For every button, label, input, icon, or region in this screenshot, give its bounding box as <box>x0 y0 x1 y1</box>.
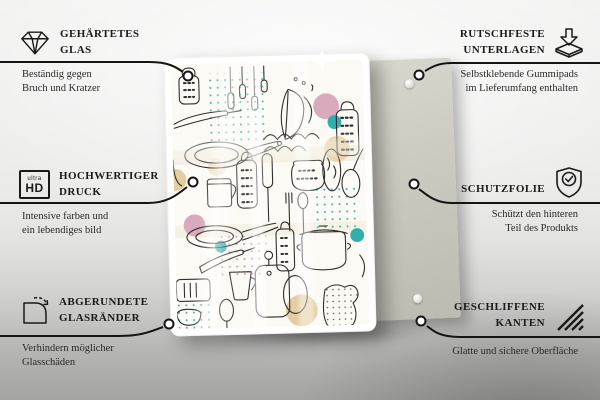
feature-description: Selbstklebende Gummipads im Lieferumfang… <box>428 68 600 96</box>
ultra-hd-icon-label-main: HD <box>25 182 43 194</box>
feature-description: Beständig gegen Bruch und Kratzer <box>0 68 165 96</box>
product-feature-infographic: GEHÄRTETES GLAS Beständig gegen Bruch un… <box>0 0 600 400</box>
diagonal-hatch-icon <box>553 300 585 332</box>
feature-title: SCHUTZFOLIE <box>461 182 545 201</box>
pattern-kitchen-doodles <box>171 60 370 330</box>
rubber-pad <box>405 79 414 88</box>
feature-description: Glatte und sichere Oberfläche <box>428 345 600 359</box>
diamond-icon <box>19 29 51 56</box>
shield-check-icon <box>553 166 585 200</box>
feature-callout-tempered-glass: GEHÄRTETES GLAS Beständig gegen Bruch un… <box>0 24 165 96</box>
feature-title: GEHÄRTETES GLAS <box>60 27 139 59</box>
rubber-pad <box>413 294 422 303</box>
feature-callout-non-slip-pads: RUTSCHFESTE UNTERLAGEN Selbstklebende Gu… <box>428 24 600 96</box>
feature-description: Verhindern möglicher Glasschäden <box>0 342 165 370</box>
feature-callout-polished-edges: GESCHLIFFENE KANTEN Glatte und sichere O… <box>428 297 600 359</box>
arrow-into-pad-icon <box>553 27 585 59</box>
ultra-hd-icon: ultra HD <box>19 170 50 199</box>
feature-callout-rounded-edges: ABGERUNDETE GLASRÄNDER Verhindern möglic… <box>0 292 165 370</box>
feature-description: Intensive farben und ein lebendiges bild <box>0 210 165 238</box>
feature-title: RUTSCHFESTE UNTERLAGEN <box>460 27 545 59</box>
feature-description: Schützt den hinteren Teil des Produkts <box>428 208 600 236</box>
feature-title: HOCHWERTIGER DRUCK <box>59 169 159 201</box>
rounded-corner-arrow-icon <box>19 295 50 326</box>
glass-board-product <box>163 52 376 336</box>
feature-title: GESCHLIFFENE KANTEN <box>454 300 545 332</box>
feature-callout-hq-print: ultra HD HOCHWERTIGER DRUCK Intensive fa… <box>0 166 165 238</box>
kitchen-doodle-pattern <box>171 60 370 330</box>
feature-title: ABGERUNDETE GLASRÄNDER <box>59 295 148 327</box>
feature-callout-protective-film: SCHUTZFOLIE Schützt den hinteren Teil de… <box>428 164 600 236</box>
